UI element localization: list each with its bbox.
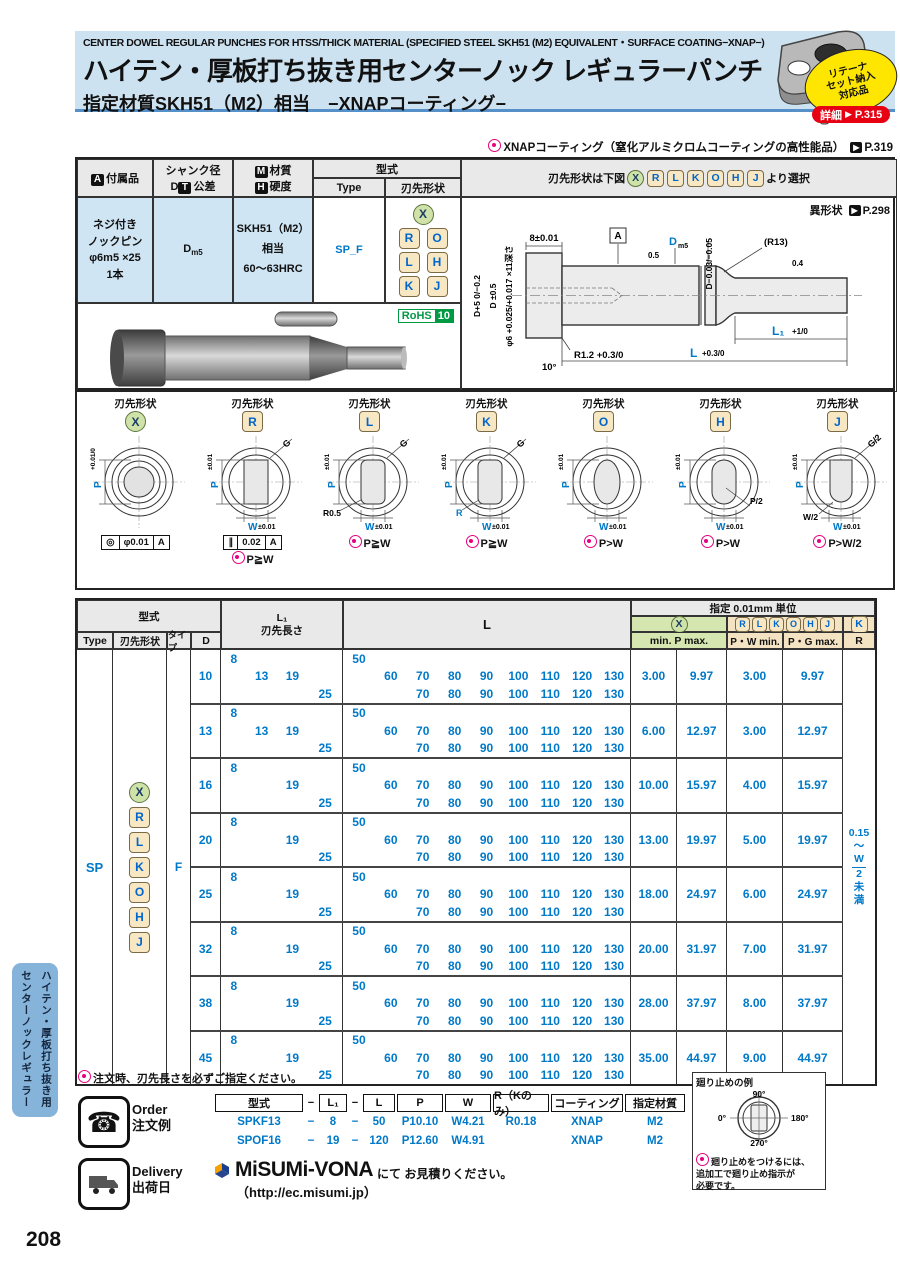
min-p-value: 18.00 (631, 868, 677, 921)
shape-icon-stack: XRLKOHJ (113, 650, 167, 1084)
pg-max-value: 12.97 (783, 705, 843, 758)
j-shape-icon: J (827, 411, 848, 432)
product-photo-cell: RoHS10 (77, 303, 461, 392)
alt-shape-ref: 異形状▶P.298 (810, 202, 890, 218)
d-block-32: 3281925506070809010011012013070809010011… (191, 923, 843, 978)
h-shape-icon: H (129, 907, 150, 928)
order-value: − (349, 1112, 361, 1131)
tip-shape-label: 刃先形状 (700, 396, 742, 411)
min-p-value: 3.00 (631, 650, 677, 703)
d-value: 25 (191, 868, 221, 921)
svg-text:±0.01: ±0.01 (609, 524, 627, 531)
info-flower-icon (349, 535, 362, 548)
x-shape-icon: X (129, 782, 150, 803)
order-example-row: SPOF16−19−120P12.60W4.91XNAPM2 (215, 1131, 685, 1150)
svg-text:0°: 0° (718, 1113, 727, 1123)
tip-shape-diagram: P±0.01W±0.01 (549, 432, 659, 534)
tip-shape-label: 刃先形状 (583, 396, 625, 411)
tip-shapes-strip: 刃先形状XP+0.01/0◎φ0.01A刃先形状RP±0.01GW±0.01∥0… (75, 390, 895, 590)
material-value: SKH51（M2）相当60〜63HRC (233, 197, 313, 303)
hdr-spec-unit: 指定 0.01mm 単位 (631, 600, 875, 616)
pg-max-value: 9.97 (783, 650, 843, 703)
l1-lengths: 81925 (221, 923, 343, 976)
d-block-25: 2581925506070809010011012013070809010011… (191, 868, 843, 923)
xnap-coating-note: XNAPコーティング（窒化アルミクロムコーティングの高性能品）▶P.319 (75, 139, 893, 155)
svg-text:±0.01: ±0.01 (492, 524, 510, 531)
hdr-r: R (843, 632, 875, 649)
order-value: − (305, 1112, 317, 1131)
order-hdr: W (445, 1094, 491, 1112)
svg-text:D: D (669, 236, 677, 248)
d-blocks: 1081319255060708090100110120130708090100… (191, 650, 843, 1084)
accessory-line: 1本 (106, 267, 123, 284)
hdr-minmax: min. P max. (631, 632, 727, 649)
l-lengths: 5060708090100110120130708090100110120130 (343, 759, 631, 812)
hdr-l1: L₁刃先長さ (221, 600, 343, 649)
info-flower-icon (696, 1153, 709, 1166)
r-shape-icon: R (647, 170, 664, 187)
o-shape-icon: O (786, 617, 801, 632)
l1-lengths: 81925 (221, 814, 343, 867)
page-ref-icon: ▶ (850, 142, 862, 153)
l-lengths: 5060708090100110120130708090100110120130 (343, 814, 631, 867)
l-shape-icon: L (667, 170, 684, 187)
order-hdr: L (363, 1094, 395, 1112)
tip-shape-j: 刃先形状JP±0.01G/2W±0.01W/2P>W/2 (779, 396, 896, 550)
svg-text:P: P (327, 481, 338, 488)
svg-text:W: W (482, 522, 492, 533)
l-lengths: 5060708090100110120130708090100110120130 (343, 1032, 631, 1085)
tip-shape-label: 刃先形状 (466, 396, 508, 411)
max-p-value: 31.97 (677, 923, 727, 976)
page-number: 208 (26, 1228, 61, 1252)
svg-text:W/2: W/2 (803, 512, 818, 522)
l-shape-icon: L (752, 617, 767, 632)
min-p-value: 13.00 (631, 814, 677, 867)
order-value: P12.60 (397, 1131, 443, 1150)
order-value: SPKF13 (215, 1112, 303, 1131)
order-value: M2 (625, 1112, 685, 1131)
svg-text:L: L (690, 346, 697, 360)
svg-text:8±0.01: 8±0.01 (530, 233, 560, 244)
h-shape-icon: H (803, 617, 818, 632)
pg-max-value: 31.97 (783, 923, 843, 976)
category-side-tab: ハイテン・厚板打ち抜き用センターノックレギュラー (12, 963, 58, 1117)
hdr-rlkohj-group: RLKOHJ (727, 616, 843, 632)
svg-text:90°: 90° (753, 1089, 766, 1099)
retainer-figure: リテーナ セット納入 対応品 詳細▶P.315 (768, 24, 898, 128)
tip-shape-diagram: P±0.01GW±0.01R0.5 (315, 432, 425, 534)
info-flower-icon (701, 535, 714, 548)
h-shape-icon: H (427, 252, 448, 273)
pg-max-value: 19.97 (783, 814, 843, 867)
info-flower-icon (813, 535, 826, 548)
order-hdr: − (305, 1094, 317, 1112)
rotation-note: 廻り止めをつけるには、 追加工で廻り止め指示が 必要です。 (696, 1153, 822, 1192)
svg-text:±0.01: ±0.01 (441, 453, 448, 470)
info-flower-icon (78, 1070, 91, 1083)
shank-value: Dm5 (153, 197, 233, 303)
max-p-value: 12.97 (677, 705, 727, 758)
m-box-icon: M (255, 166, 268, 178)
svg-text:P: P (561, 481, 572, 488)
order-value (493, 1131, 549, 1150)
svg-text:P: P (210, 481, 221, 488)
svg-text:W: W (248, 522, 258, 533)
o-shape-icon: O (427, 228, 448, 249)
svg-text:D ±0.5: D ±0.5 (488, 283, 498, 308)
hdr-k-group: K (843, 616, 875, 632)
shape-condition-note: P≧W (232, 551, 274, 566)
order-hdr: コーティング (551, 1094, 623, 1112)
k-shape-icon: K (129, 857, 150, 878)
k-shape-icon: K (399, 276, 420, 297)
order-value: XNAP (551, 1112, 623, 1131)
l1-lengths: 8131925 (221, 705, 343, 758)
svg-text:±0.01: ±0.01 (324, 453, 331, 470)
order-value: 19 (319, 1131, 347, 1150)
l-lengths: 5060708090100110120130708090100110120130 (343, 868, 631, 921)
order-hdr: − (349, 1094, 361, 1112)
l-lengths: 5060708090100110120130708090100110120130 (343, 705, 631, 758)
d-block-10: 1081319255060708090100110120130708090100… (191, 650, 843, 705)
shape-condition-note: P>W (584, 535, 623, 550)
l-lengths: 5060708090100110120130708090100110120130 (343, 923, 631, 976)
order-hdr: P (397, 1094, 443, 1112)
spec-hdr-tipshape: 刃先形状 (385, 178, 461, 197)
rohs-badge: RoHS10 (398, 309, 454, 323)
pg-max-value: 24.97 (783, 868, 843, 921)
svg-text:R: R (456, 508, 463, 518)
d-value: 13 (191, 705, 221, 758)
rotation-stop-box: 廻り止めの例 90° 0° 180° 270° 廻り止めをつけるには、 追加工で… (692, 1072, 826, 1190)
dimension-drawing-cell: 異形状▶P.298 (461, 197, 897, 392)
x-shape-icon: X (125, 411, 146, 432)
svg-text:φ6 +0.025/+0.017 ×11深さ: φ6 +0.025/+0.017 ×11深さ (504, 245, 514, 346)
j-shape-icon: J (820, 617, 835, 632)
pw-min-value: 5.00 (727, 814, 783, 867)
shape-condition-note: P≧W (349, 535, 391, 550)
a-box-icon: A (91, 174, 104, 186)
order-value: SPOF16 (215, 1131, 303, 1150)
order-value: 8 (319, 1112, 347, 1131)
svg-text:P: P (795, 481, 806, 488)
spec-hdr-material: M材質 H硬度 (233, 159, 313, 197)
order-value: XNAP (551, 1131, 623, 1150)
svg-text:P: P (678, 481, 689, 488)
order-value: W4.21 (445, 1112, 491, 1131)
k-shape-icon: K (851, 616, 868, 633)
min-p-value: 20.00 (631, 923, 677, 976)
detail-page-badge: 詳細▶P.315 (812, 106, 890, 123)
tip-shape-label: 刃先形状 (115, 396, 157, 411)
svg-text:±0.01: ±0.01 (207, 453, 214, 470)
svg-text:±0.01: ±0.01 (843, 524, 861, 531)
l1-lengths: 8131925 (221, 650, 343, 703)
r-shape-icon: R (242, 411, 263, 432)
rotation-diagram: 90° 0° 180° 270° (696, 1089, 822, 1147)
j-shape-icon: J (747, 170, 764, 187)
order-value: 120 (363, 1131, 395, 1150)
svg-text:10°: 10° (542, 362, 557, 373)
h-shape-icon: H (727, 170, 744, 187)
j-shape-icon: J (129, 932, 150, 953)
pw-min-value: 8.00 (727, 977, 783, 1030)
d-value: 32 (191, 923, 221, 976)
hdr-type: Type (77, 632, 113, 649)
order-hdr: 指定材質 (625, 1094, 685, 1112)
type-value: SP (77, 650, 113, 1084)
d-block-16: 1681925506070809010011012013070809010011… (191, 759, 843, 814)
tip-shape-o: 刃先形状OP±0.01W±0.01P>W (545, 396, 662, 550)
accessory-line: φ6m5 ×25 (89, 250, 141, 267)
shape-condition-note: P>W/2 (813, 535, 861, 550)
max-p-value: 37.97 (677, 977, 727, 1030)
max-p-value: 15.97 (677, 759, 727, 812)
pw-min-value: 7.00 (727, 923, 783, 976)
order-hdr: 型式 (215, 1094, 303, 1112)
svg-text:180°: 180° (791, 1113, 809, 1123)
catalog-page: ハイテン・厚板打ち抜き用センターノックレギュラー 208 CENTER DOWE… (0, 0, 900, 1271)
svg-text:0.5: 0.5 (648, 251, 660, 260)
tip-shape-diagram: P±0.01GW±0.01R (432, 432, 542, 534)
type-value: SP_F (313, 197, 385, 303)
max-p-value: 24.97 (677, 868, 727, 921)
l-lengths: 5060708090100110120130708090100110120130 (343, 977, 631, 1030)
svg-text:±0.01: ±0.01 (375, 524, 393, 531)
order-value: − (305, 1131, 317, 1150)
x-shape-icon: X (413, 204, 434, 225)
order-hdr: L₁ (319, 1094, 347, 1112)
t-box-icon: T (178, 182, 191, 194)
pw-min-value: 6.00 (727, 868, 783, 921)
order-label: Order注文例 (132, 1102, 171, 1135)
tip-shape-label: 刃先形状 (349, 396, 391, 411)
o-shape-icon: O (129, 882, 150, 903)
d-value: 20 (191, 814, 221, 867)
taipu-value: F (167, 650, 191, 1084)
tip-shape-diagram: P±0.01W±0.01P/2 (666, 432, 776, 534)
spec-hdr-accessory: A付属品 (77, 159, 153, 197)
tip-shape-select-note: 刃先形状は下図XRLKOHJより選択 (461, 159, 897, 197)
max-p-value: 9.97 (677, 650, 727, 703)
misumi-url: （http://ec.misumi.jp） (236, 1182, 377, 1201)
spec-table: A付属品 シャンク径 DT公差 M材質 H硬度 型式 Type 刃先形状 刃先形… (75, 157, 895, 390)
d-block-38: 3881925506070809010011012013070809010011… (191, 977, 843, 1032)
o-shape-icon: O (707, 170, 724, 187)
d-block-20: 2081925506070809010011012013070809010011… (191, 814, 843, 869)
svg-text:+0.3/0: +0.3/0 (702, 349, 725, 358)
hdr-pg: P・G max. (783, 632, 843, 649)
pg-max-value: 15.97 (783, 759, 843, 812)
r-shape-icon: R (735, 617, 750, 632)
order-value: R0.18 (493, 1112, 549, 1131)
tolerance-frame: ◎φ0.01A (101, 535, 169, 550)
hdr-d: D (191, 632, 221, 649)
svg-text:±0.01: ±0.01 (258, 524, 276, 531)
tip-shape-h: 刃先形状HP±0.01W±0.01P/2P>W (662, 396, 779, 550)
min-p-value: 35.00 (631, 1032, 677, 1085)
svg-text:P/2: P/2 (750, 496, 763, 506)
truck-icon (78, 1158, 130, 1210)
pg-max-value: 37.97 (783, 977, 843, 1030)
l1-lengths: 81925 (221, 759, 343, 812)
info-flower-icon (584, 535, 597, 548)
rotation-title: 廻り止めの例 (696, 1075, 822, 1089)
side-tab-text: ハイテン・厚板打ち抜き用センターノックレギュラー (15, 970, 55, 1110)
accessory-line: ネジ付き (93, 217, 137, 234)
hdr-tipshape: 刃先形状 (113, 632, 167, 649)
order-example-table: 型式−L₁−LPWR（Kのみ）コーティング指定材質SPKF13−8−50P10.… (215, 1094, 685, 1150)
j-shape-icon: J (427, 276, 448, 297)
svg-text:W: W (833, 522, 843, 533)
d-value: 16 (191, 759, 221, 812)
svg-text:0.4: 0.4 (792, 259, 804, 268)
side-view-drawing: A 8±0.01 0.5 D m5 D−0.03/−0.05 (R13) 0.4… (462, 198, 896, 391)
hdr-pw: P・W min. (727, 632, 783, 649)
order-value: 50 (363, 1112, 395, 1131)
dimension-table-body: SP XRLKOHJ F 108131925506070809010011012… (77, 649, 875, 1084)
tip-shape-k: 刃先形状KP±0.01GW±0.01RP≧W (428, 396, 545, 550)
svg-text:P: P (93, 481, 104, 488)
arrow-icon: ▶ (845, 109, 852, 120)
spec-hdr-type: Type (313, 178, 385, 197)
r-range-note: 0.15 〜 W2 未 満 (843, 650, 875, 1084)
l-shape-icon: L (359, 411, 380, 432)
tip-shape-label: 刃先形状 (232, 396, 274, 411)
l-shape-icon: L (129, 832, 150, 853)
d-block-13: 1381319255060708090100110120130708090100… (191, 705, 843, 760)
min-p-value: 6.00 (631, 705, 677, 758)
phone-icon: ☎ (78, 1096, 130, 1148)
svg-text:m5: m5 (678, 243, 688, 250)
hdr-l: L (343, 600, 631, 649)
d-value: 10 (191, 650, 221, 703)
tip-shape-label: 刃先形状 (817, 396, 859, 411)
spec-hdr-shank: シャンク径 DT公差 (153, 159, 233, 197)
order-footnote: 注文時、刃先長さを必ずご指定ください。 (78, 1070, 302, 1086)
k-shape-icon: K (769, 617, 784, 632)
shape-condition-note: P>W (701, 535, 740, 550)
max-p-value: 19.97 (677, 814, 727, 867)
order-hdr: R（Kのみ） (493, 1094, 549, 1112)
min-p-value: 10.00 (631, 759, 677, 812)
h-shape-icon: H (710, 411, 731, 432)
order-value: − (349, 1131, 361, 1150)
info-flower-icon (232, 551, 245, 564)
page-ref-icon: ▶ (849, 205, 861, 216)
dimension-table-header: 型式 L₁刃先長さ L 指定 0.01mm 単位 X RLKOHJ K Type… (77, 600, 875, 649)
svg-text:+1/0: +1/0 (792, 327, 808, 336)
tolerance-frame: ∥0.02A (223, 535, 281, 550)
svg-text:W: W (599, 522, 609, 533)
logo-mark-icon (213, 1161, 231, 1179)
order-value: P10.10 (397, 1112, 443, 1131)
pw-min-value: 3.00 (727, 650, 783, 703)
tip-shape-x: 刃先形状XP+0.01/0◎φ0.01A (77, 396, 194, 550)
misumi-vona-logo: MiSUMi-VONAにて お見積りください。 (213, 1158, 512, 1182)
svg-text:±0.01: ±0.01 (675, 453, 682, 470)
l1-lengths: 81925 (221, 868, 343, 921)
hdr-x-group: X (631, 616, 727, 632)
r-shape-icon: R (399, 228, 420, 249)
accessory-value: ネジ付きノックピンφ6m5 ×251本 (77, 197, 153, 303)
o-shape-icon: O (593, 411, 614, 432)
x-shape-icon: X (671, 616, 688, 633)
r-shape-icon: R (129, 807, 150, 828)
svg-text:L₁: L₁ (772, 324, 784, 338)
tip-shape-icons: XROLHKJ (385, 197, 461, 303)
l1-lengths: 81925 (221, 977, 343, 1030)
svg-text:±0.01: ±0.01 (726, 524, 744, 531)
svg-text:R1.2 +0.3/0: R1.2 +0.3/0 (574, 350, 623, 361)
pw-min-value: 4.00 (727, 759, 783, 812)
k-shape-icon: K (687, 170, 704, 187)
info-flower-icon (488, 139, 501, 152)
info-flower-icon (466, 535, 479, 548)
svg-text:+0.01/0: +0.01/0 (90, 448, 97, 470)
d-value: 38 (191, 977, 221, 1030)
svg-text:P: P (444, 481, 455, 488)
tip-shape-diagram: P±0.01G/2W±0.01W/2 (783, 432, 893, 534)
svg-text:(R13): (R13) (764, 237, 788, 248)
svg-text:A: A (614, 231, 621, 242)
svg-text:±0.01: ±0.01 (792, 453, 799, 470)
min-p-value: 28.00 (631, 977, 677, 1030)
delivery-label: Delivery出荷日 (132, 1164, 183, 1197)
dimension-table: 型式 L₁刃先長さ L 指定 0.01mm 単位 X RLKOHJ K Type… (75, 598, 877, 1086)
l-shape-icon: L (399, 252, 420, 273)
svg-text:W: W (716, 522, 726, 533)
svg-text:270°: 270° (750, 1138, 768, 1147)
hdr-taipu: タイプ (167, 632, 191, 649)
svg-text:D−0.03/−0.05: D−0.03/−0.05 (704, 238, 714, 290)
order-example-row: SPKF13−8−50P10.10W4.21R0.18XNAPM2 (215, 1112, 685, 1131)
l-lengths: 5060708090100110120130708090100110120130 (343, 650, 631, 703)
tip-shape-r: 刃先形状RP±0.01GW±0.01∥0.02AP≧W (194, 396, 311, 566)
tip-shape-diagram: P+0.01/0 (81, 432, 191, 534)
order-value: M2 (625, 1131, 685, 1150)
accessory-line: ノックピン (88, 234, 143, 251)
pw-min-value: 3.00 (727, 705, 783, 758)
x-shape-icon: X (627, 170, 644, 187)
svg-text:R0.5: R0.5 (323, 508, 341, 518)
h-box-icon: H (255, 182, 268, 194)
order-value: W4.91 (445, 1131, 491, 1150)
tip-shape-diagram: P±0.01GW±0.01 (198, 432, 308, 534)
k-shape-icon: K (476, 411, 497, 432)
spec-hdr-model: 型式 (313, 159, 461, 178)
svg-text:W: W (365, 522, 375, 533)
svg-text:±0.01: ±0.01 (558, 453, 565, 470)
shape-condition-note: P≧W (466, 535, 508, 550)
tip-shape-l: 刃先形状LP±0.01GW±0.01R0.5P≧W (311, 396, 428, 550)
svg-text:D+5 0/−0.2: D+5 0/−0.2 (472, 275, 482, 317)
hdr-model: 型式 (77, 600, 221, 632)
